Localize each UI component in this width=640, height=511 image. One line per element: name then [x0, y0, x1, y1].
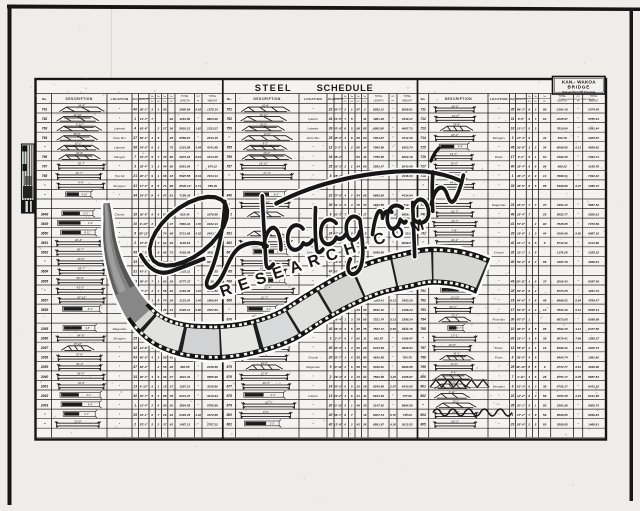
svg-text:74: 74	[163, 298, 167, 302]
svg-text:675: 675	[226, 365, 232, 369]
svg-text:6.61: 6.61	[575, 365, 581, 369]
svg-text:9: 9	[158, 375, 160, 379]
svg-text:1981.48: 1981.48	[373, 117, 384, 121]
svg-text:5: 5	[535, 365, 537, 369]
svg-text:3: 3	[535, 394, 537, 398]
svg-text:1: 1	[528, 232, 530, 236]
svg-text:6.12: 6.12	[575, 146, 581, 150]
svg-text:2164.18: 2164.18	[556, 107, 568, 111]
svg-text:8500.73: 8500.73	[588, 403, 599, 407]
svg-text:54'-9": 54'-9"	[77, 334, 85, 338]
svg-text:71: 71	[163, 184, 167, 188]
svg-text:5: 5	[528, 403, 530, 407]
svg-text:2.90: 2.90	[194, 308, 201, 312]
svg-text:63'-9": 63'-9"	[334, 127, 343, 131]
svg-text:20'-0": 20'-0"	[333, 384, 343, 388]
svg-text:7257.25: 7257.25	[557, 394, 568, 398]
svg-text:2043.15: 2043.15	[206, 136, 218, 140]
svg-text:4: 4	[150, 375, 153, 379]
svg-text:17: 17	[511, 308, 515, 312]
svg-text:Diagonals: Diagonals	[306, 365, 320, 369]
svg-text:2062: 2062	[40, 394, 49, 398]
svg-text:38: 38	[543, 384, 547, 388]
svg-text:24'-5": 24'-5"	[333, 117, 343, 121]
svg-text:34: 34	[363, 394, 367, 398]
svg-text:Laterals: Laterals	[114, 146, 125, 150]
svg-text:2059: 2059	[40, 365, 49, 369]
svg-text:1289.37: 1289.37	[588, 337, 599, 341]
svg-text:87: 87	[356, 107, 360, 111]
svg-text:39: 39	[329, 127, 333, 131]
svg-text:7: 7	[151, 279, 153, 283]
svg-text:2: 2	[343, 107, 346, 111]
svg-text:23'-9": 23'-9"	[73, 419, 82, 423]
svg-text:67'-10": 67'-10"	[77, 295, 87, 299]
svg-text:794: 794	[420, 318, 426, 322]
svg-text:62: 62	[356, 337, 360, 341]
svg-text:Stringers: Stringers	[113, 337, 126, 341]
svg-text:8: 8	[528, 289, 530, 293]
svg-text:82: 82	[363, 127, 367, 131]
svg-text:4.30: 4.30	[389, 423, 396, 427]
svg-text:37: 37	[163, 423, 167, 427]
svg-text:23'-2": 23'-2"	[516, 127, 526, 131]
svg-text:29: 29	[362, 346, 367, 350]
svg-text:5879.41: 5879.41	[557, 337, 568, 341]
svg-text:6987.16: 6987.16	[588, 232, 599, 236]
svg-text:9: 9	[158, 251, 160, 255]
svg-text:1468.81: 1468.81	[588, 423, 599, 427]
svg-text:4: 4	[343, 193, 346, 197]
svg-text:4302.49: 4302.49	[178, 251, 190, 255]
svg-text:3205.57: 3205.57	[588, 136, 599, 140]
svg-text:753: 753	[226, 127, 232, 131]
svg-text:52'-6": 52'-6"	[517, 308, 526, 312]
svg-text:4: 4	[343, 394, 346, 398]
svg-text:8: 8	[528, 394, 530, 398]
svg-text:5755.33: 5755.33	[588, 117, 599, 121]
svg-text:9: 9	[535, 356, 537, 360]
svg-text:9: 9	[528, 136, 530, 140]
svg-text:8530.13: 8530.13	[179, 184, 190, 188]
svg-text:3: 3	[158, 356, 160, 360]
svg-text:TOTAL: TOTAL	[558, 95, 566, 98]
svg-text:4826.82: 4826.82	[587, 146, 599, 150]
svg-text:6344.58: 6344.58	[373, 346, 384, 350]
svg-text:5: 5	[151, 394, 153, 398]
svg-text:4261.50: 4261.50	[178, 117, 190, 121]
svg-text:49: 49	[355, 403, 360, 407]
svg-text:7159.35: 7159.35	[179, 193, 190, 197]
svg-text:Laterals: Laterals	[307, 127, 318, 131]
svg-text:15'-10": 15'-10"	[74, 342, 83, 346]
svg-text:1: 1	[158, 107, 160, 111]
svg-text:3'-1": 3'-1"	[86, 394, 91, 397]
svg-text:3: 3	[151, 107, 153, 111]
svg-text:TOTAL LENGTH FROM TOTAL WEIG: TOTAL LENGTH FROM TOTAL WEIGHT	[559, 98, 596, 101]
svg-text:3.46: 3.46	[195, 298, 201, 302]
svg-text:96: 96	[163, 174, 167, 178]
svg-text:8811.32: 8811.32	[373, 308, 384, 312]
svg-text:85: 85	[543, 184, 547, 188]
svg-text:28: 28	[542, 375, 547, 379]
svg-text:7: 7	[535, 203, 537, 207]
svg-text:8: 8	[344, 127, 346, 131]
svg-text:2: 2	[150, 222, 153, 226]
svg-text:2: 2	[534, 222, 537, 226]
svg-text:5.13: 5.13	[390, 318, 396, 322]
svg-text:13'-7": 13'-7"	[140, 117, 149, 121]
svg-text:2: 2	[534, 146, 537, 150]
svg-text:41: 41	[132, 184, 137, 188]
svg-text:20: 20	[169, 403, 174, 407]
svg-text:4: 4	[133, 127, 136, 131]
svg-text:40'-0": 40'-0"	[139, 356, 149, 360]
svg-text:LOCATION: LOCATION	[304, 97, 322, 101]
svg-text:22: 22	[328, 107, 333, 111]
svg-text:704.76: 704.76	[403, 356, 413, 360]
svg-text:765.39: 765.39	[208, 184, 218, 188]
svg-text:3.49: 3.49	[195, 146, 201, 150]
svg-text:44: 44	[328, 117, 333, 121]
svg-text:712: 712	[420, 117, 426, 121]
svg-text:44'-4": 44'-4"	[75, 238, 83, 242]
svg-text:14: 14	[543, 308, 547, 312]
svg-text:27: 27	[132, 136, 137, 140]
svg-text:752: 752	[226, 117, 232, 121]
svg-text:2: 2	[343, 165, 346, 169]
svg-text:4243.90: 4243.90	[401, 384, 413, 388]
svg-text:4: 4	[350, 356, 353, 360]
svg-text:59: 59	[543, 413, 547, 417]
svg-text:678: 678	[226, 394, 232, 398]
svg-text:714: 714	[420, 136, 426, 140]
svg-text:10: 10	[511, 327, 515, 331]
svg-text:83: 83	[170, 193, 174, 197]
svg-text:LENGTH: LENGTH	[333, 98, 343, 101]
svg-text:30'-0": 30'-0"	[334, 346, 343, 350]
svg-text:15: 15	[163, 384, 167, 388]
svg-text:3166.78: 3166.78	[588, 165, 599, 169]
svg-text:8.25: 8.25	[575, 375, 581, 379]
svg-text:5: 5	[351, 384, 353, 388]
svg-text:8: 8	[344, 375, 346, 379]
svg-text:50: 50	[363, 365, 367, 369]
svg-text:6'-7": 6'-7"	[84, 413, 89, 416]
svg-text:47'-8": 47'-8"	[139, 241, 149, 245]
svg-text:8.80: 8.80	[575, 232, 581, 236]
svg-text:34'-11": 34'-11"	[260, 113, 269, 117]
svg-text:27'-4": 27'-4"	[516, 136, 526, 140]
svg-text:9162.14: 9162.14	[207, 222, 218, 226]
svg-text:54: 54	[356, 193, 360, 197]
svg-text:3: 3	[344, 356, 346, 360]
svg-text:96: 96	[543, 107, 547, 111]
svg-text:2: 2	[527, 423, 530, 427]
svg-text:59: 59	[543, 394, 547, 398]
svg-text:Posts: Posts	[495, 346, 503, 350]
svg-text:35: 35	[363, 403, 367, 407]
svg-text:29: 29	[510, 232, 515, 236]
svg-text:60'-8": 60'-8"	[74, 132, 82, 136]
svg-text:764: 764	[42, 136, 48, 140]
svg-text:8: 8	[151, 193, 153, 197]
svg-text:797: 797	[420, 346, 426, 350]
svg-text:72: 72	[356, 375, 360, 379]
svg-text:24: 24	[328, 232, 333, 236]
svg-text:39: 39	[543, 337, 547, 341]
svg-text:6.70: 6.70	[390, 413, 396, 417]
svg-text:TOTAL: TOTAL	[403, 95, 411, 98]
svg-text:93: 93	[363, 136, 367, 140]
svg-text:4294.89: 4294.89	[556, 232, 568, 236]
svg-text:26: 26	[162, 413, 167, 417]
svg-text:68'-9": 68'-9"	[77, 276, 85, 280]
svg-text:755: 755	[226, 146, 232, 150]
svg-text:2: 2	[527, 327, 530, 331]
svg-text:37'-8": 37'-8"	[76, 353, 84, 357]
svg-text:18'-10": 18'-10"	[259, 162, 269, 166]
svg-text:9: 9	[158, 298, 160, 302]
svg-text:7: 7	[351, 413, 353, 417]
svg-text:17: 17	[511, 155, 515, 159]
svg-text:13: 13	[133, 384, 137, 388]
svg-text:3: 3	[330, 337, 332, 341]
svg-text:3654: 3654	[41, 270, 49, 274]
svg-text:21: 21	[132, 174, 137, 178]
svg-text:9: 9	[535, 174, 537, 178]
svg-text:22: 22	[510, 394, 515, 398]
svg-text:8: 8	[535, 165, 537, 169]
svg-text:5: 5	[151, 423, 153, 427]
svg-text:9'-2": 9'-2"	[518, 155, 525, 159]
svg-text:6535.13: 6535.13	[588, 308, 599, 312]
svg-text:37: 37	[170, 384, 174, 388]
svg-text:STEEL: STEEL	[255, 83, 292, 93]
svg-text:756: 756	[226, 155, 232, 159]
svg-text:1079.96: 1079.96	[207, 212, 218, 216]
svg-text:6: 6	[544, 241, 546, 245]
svg-text:8: 8	[344, 384, 346, 388]
svg-text:1.61: 1.61	[575, 346, 581, 350]
svg-text:55: 55	[356, 356, 360, 360]
svg-text:5: 5	[535, 327, 537, 331]
svg-text:Top Stl: Top Stl	[115, 174, 125, 178]
svg-text:4141.88: 4141.88	[206, 146, 218, 150]
svg-text:9: 9	[544, 365, 546, 369]
svg-text:5: 5	[535, 184, 537, 188]
svg-text:No.: No.	[42, 97, 47, 101]
svg-text:7027.82: 7027.82	[207, 308, 218, 312]
svg-text:7004.87: 7004.87	[373, 136, 384, 140]
svg-text:3123.24: 3123.24	[179, 298, 190, 302]
svg-text:26'-8": 26'-8"	[77, 103, 86, 107]
svg-text:64'-6": 64'-6"	[517, 298, 526, 302]
svg-text:3: 3	[351, 203, 353, 207]
svg-text:4166.47: 4166.47	[401, 337, 413, 341]
svg-text:2057: 2057	[40, 346, 49, 350]
svg-text:9404.74: 9404.74	[557, 356, 568, 360]
svg-text:7862.25: 7862.25	[557, 327, 568, 331]
svg-text:1487.13: 1487.13	[179, 423, 190, 427]
svg-text:94: 94	[356, 165, 360, 169]
svg-text:4414.94: 4414.94	[401, 193, 413, 197]
svg-text:TOTAL: TOTAL	[209, 95, 217, 98]
svg-text:58'-0": 58'-0"	[140, 279, 149, 283]
svg-text:25: 25	[132, 337, 137, 341]
svg-text:57'-8": 57'-8"	[334, 193, 343, 197]
svg-text:52: 52	[356, 346, 360, 350]
svg-text:78: 78	[363, 327, 367, 331]
svg-text:2'-4": 2'-4"	[88, 222, 93, 225]
svg-text:BRIDGE: BRIDGE	[567, 85, 590, 90]
svg-text:Chords: Chords	[308, 356, 318, 360]
svg-text:7: 7	[351, 337, 353, 341]
svg-text:3651: 3651	[41, 241, 49, 245]
svg-text:Interior: Interior	[308, 117, 319, 121]
svg-text:5657.18: 5657.18	[588, 203, 599, 207]
svg-text:79: 79	[356, 318, 360, 322]
svg-text:3: 3	[158, 279, 160, 283]
svg-text:3650: 3650	[41, 232, 49, 236]
svg-text:801: 801	[420, 384, 426, 388]
svg-text:9: 9	[151, 174, 153, 178]
svg-text:8.94: 8.94	[575, 298, 581, 302]
svg-text:93: 93	[543, 423, 547, 427]
svg-text:22: 22	[328, 193, 333, 197]
svg-text:9269.91: 9269.91	[402, 107, 413, 111]
svg-text:795: 795	[420, 327, 426, 331]
svg-text:33'-1": 33'-1"	[517, 251, 526, 255]
svg-text:87: 87	[163, 193, 167, 197]
svg-text:5758.56: 5758.56	[207, 403, 218, 407]
svg-text:3928.63: 3928.63	[402, 346, 413, 350]
svg-text:9508.85: 9508.85	[557, 413, 568, 417]
svg-text:No.: No.	[421, 97, 426, 101]
svg-text:716: 716	[420, 155, 426, 159]
svg-text:2.71: 2.71	[194, 184, 201, 188]
svg-text:1: 1	[535, 403, 537, 407]
svg-text:8651.84: 8651.84	[179, 165, 190, 169]
svg-text:39'-5": 39'-5"	[451, 104, 459, 108]
svg-text:18: 18	[170, 174, 174, 178]
svg-text:6: 6	[151, 413, 153, 417]
svg-text:9163.49: 9163.49	[373, 394, 384, 398]
svg-text:32'-2": 32'-2"	[451, 238, 459, 242]
svg-text:94: 94	[363, 375, 367, 379]
svg-text:14: 14	[543, 174, 547, 178]
svg-text:19'-9": 19'-9"	[453, 122, 461, 126]
svg-text:90: 90	[170, 165, 174, 169]
svg-text:4048.96: 4048.96	[587, 365, 599, 369]
svg-text:534.79: 534.79	[558, 136, 568, 140]
svg-text:68'-6": 68'-6"	[517, 327, 526, 331]
svg-text:2: 2	[527, 346, 530, 350]
svg-text:34'-0": 34'-0"	[76, 362, 84, 366]
svg-text:9: 9	[535, 413, 537, 417]
svg-text:7884.42: 7884.42	[179, 222, 190, 226]
svg-text:3: 3	[351, 375, 353, 379]
svg-text:1: 1	[134, 117, 136, 121]
svg-text:32: 32	[511, 251, 515, 255]
svg-text:6559.87: 6559.87	[179, 136, 190, 140]
svg-text:2: 2	[157, 423, 160, 427]
svg-text:3: 3	[528, 146, 530, 150]
svg-text:3.32: 3.32	[195, 413, 201, 417]
svg-text:9'-4": 9'-4"	[88, 403, 93, 406]
svg-text:8: 8	[528, 260, 530, 264]
svg-text:5710.42: 5710.42	[557, 241, 568, 245]
svg-text:8'-10": 8'-10"	[140, 384, 149, 388]
svg-text:2974.18: 2974.18	[178, 155, 190, 159]
svg-text:8908.95: 8908.95	[402, 365, 413, 369]
svg-text:4: 4	[527, 356, 530, 360]
svg-text:34: 34	[329, 155, 333, 159]
svg-text:2.24: 2.24	[574, 394, 581, 398]
svg-text:55'-9": 55'-9"	[517, 423, 526, 427]
svg-text:42: 42	[132, 346, 137, 350]
svg-text:6.37: 6.37	[575, 184, 581, 188]
svg-text:1149.64: 1149.64	[179, 241, 190, 245]
svg-text:2: 2	[534, 260, 537, 264]
svg-text:29'-0": 29'-0"	[262, 151, 271, 155]
svg-text:4: 4	[150, 136, 153, 140]
svg-text:6293.19: 6293.19	[402, 155, 413, 159]
svg-text:42: 42	[510, 241, 515, 245]
svg-text:92: 92	[170, 117, 174, 121]
svg-text:40: 40	[328, 346, 333, 350]
svg-text:7: 7	[528, 212, 530, 216]
svg-text:25: 25	[328, 165, 333, 169]
svg-text:7830.84: 7830.84	[557, 127, 568, 131]
svg-text:3: 3	[535, 127, 537, 131]
svg-text:4726.17: 4726.17	[556, 384, 568, 388]
svg-text:68: 68	[170, 155, 174, 159]
svg-text:751: 751	[226, 107, 232, 111]
svg-text:50'-2": 50'-2"	[449, 305, 457, 309]
svg-text:75: 75	[170, 146, 174, 150]
svg-text:12'-4": 12'-4"	[140, 403, 149, 407]
svg-text:679: 679	[226, 403, 232, 407]
svg-text:1176.29: 1176.29	[557, 251, 568, 255]
svg-text:LENGTH: LENGTH	[139, 98, 149, 101]
svg-text:27'-3": 27'-3"	[262, 171, 271, 175]
svg-text:57'-1": 57'-1"	[140, 423, 149, 427]
svg-text:7524.36: 7524.36	[557, 308, 568, 312]
svg-text:40'-5": 40'-5"	[263, 381, 271, 385]
svg-text:No.: No.	[227, 97, 232, 101]
svg-text:6: 6	[351, 365, 353, 369]
svg-text:6: 6	[528, 107, 530, 111]
svg-text:90: 90	[543, 222, 547, 226]
svg-text:5'-7": 5'-7"	[457, 327, 462, 330]
svg-text:1960.84: 1960.84	[207, 298, 218, 302]
svg-text:952.55: 952.55	[180, 365, 190, 369]
svg-text:LENGTH: LENGTH	[516, 98, 526, 101]
svg-text:3487.78: 3487.78	[557, 260, 568, 264]
svg-text:8497.11: 8497.11	[179, 308, 190, 312]
svg-text:1: 1	[344, 346, 346, 350]
svg-text:6966.52: 6966.52	[557, 298, 568, 302]
svg-text:REQ: REQ	[133, 98, 138, 101]
svg-text:2: 2	[157, 289, 160, 293]
svg-text:Chords: Chords	[115, 212, 125, 216]
svg-text:9269.99: 9269.99	[588, 318, 599, 322]
svg-text:16'-8": 16'-8"	[449, 343, 457, 347]
svg-text:34'-8": 34'-8"	[78, 381, 86, 385]
svg-text:20'-7": 20'-7"	[333, 107, 343, 111]
svg-text:55: 55	[163, 289, 167, 293]
